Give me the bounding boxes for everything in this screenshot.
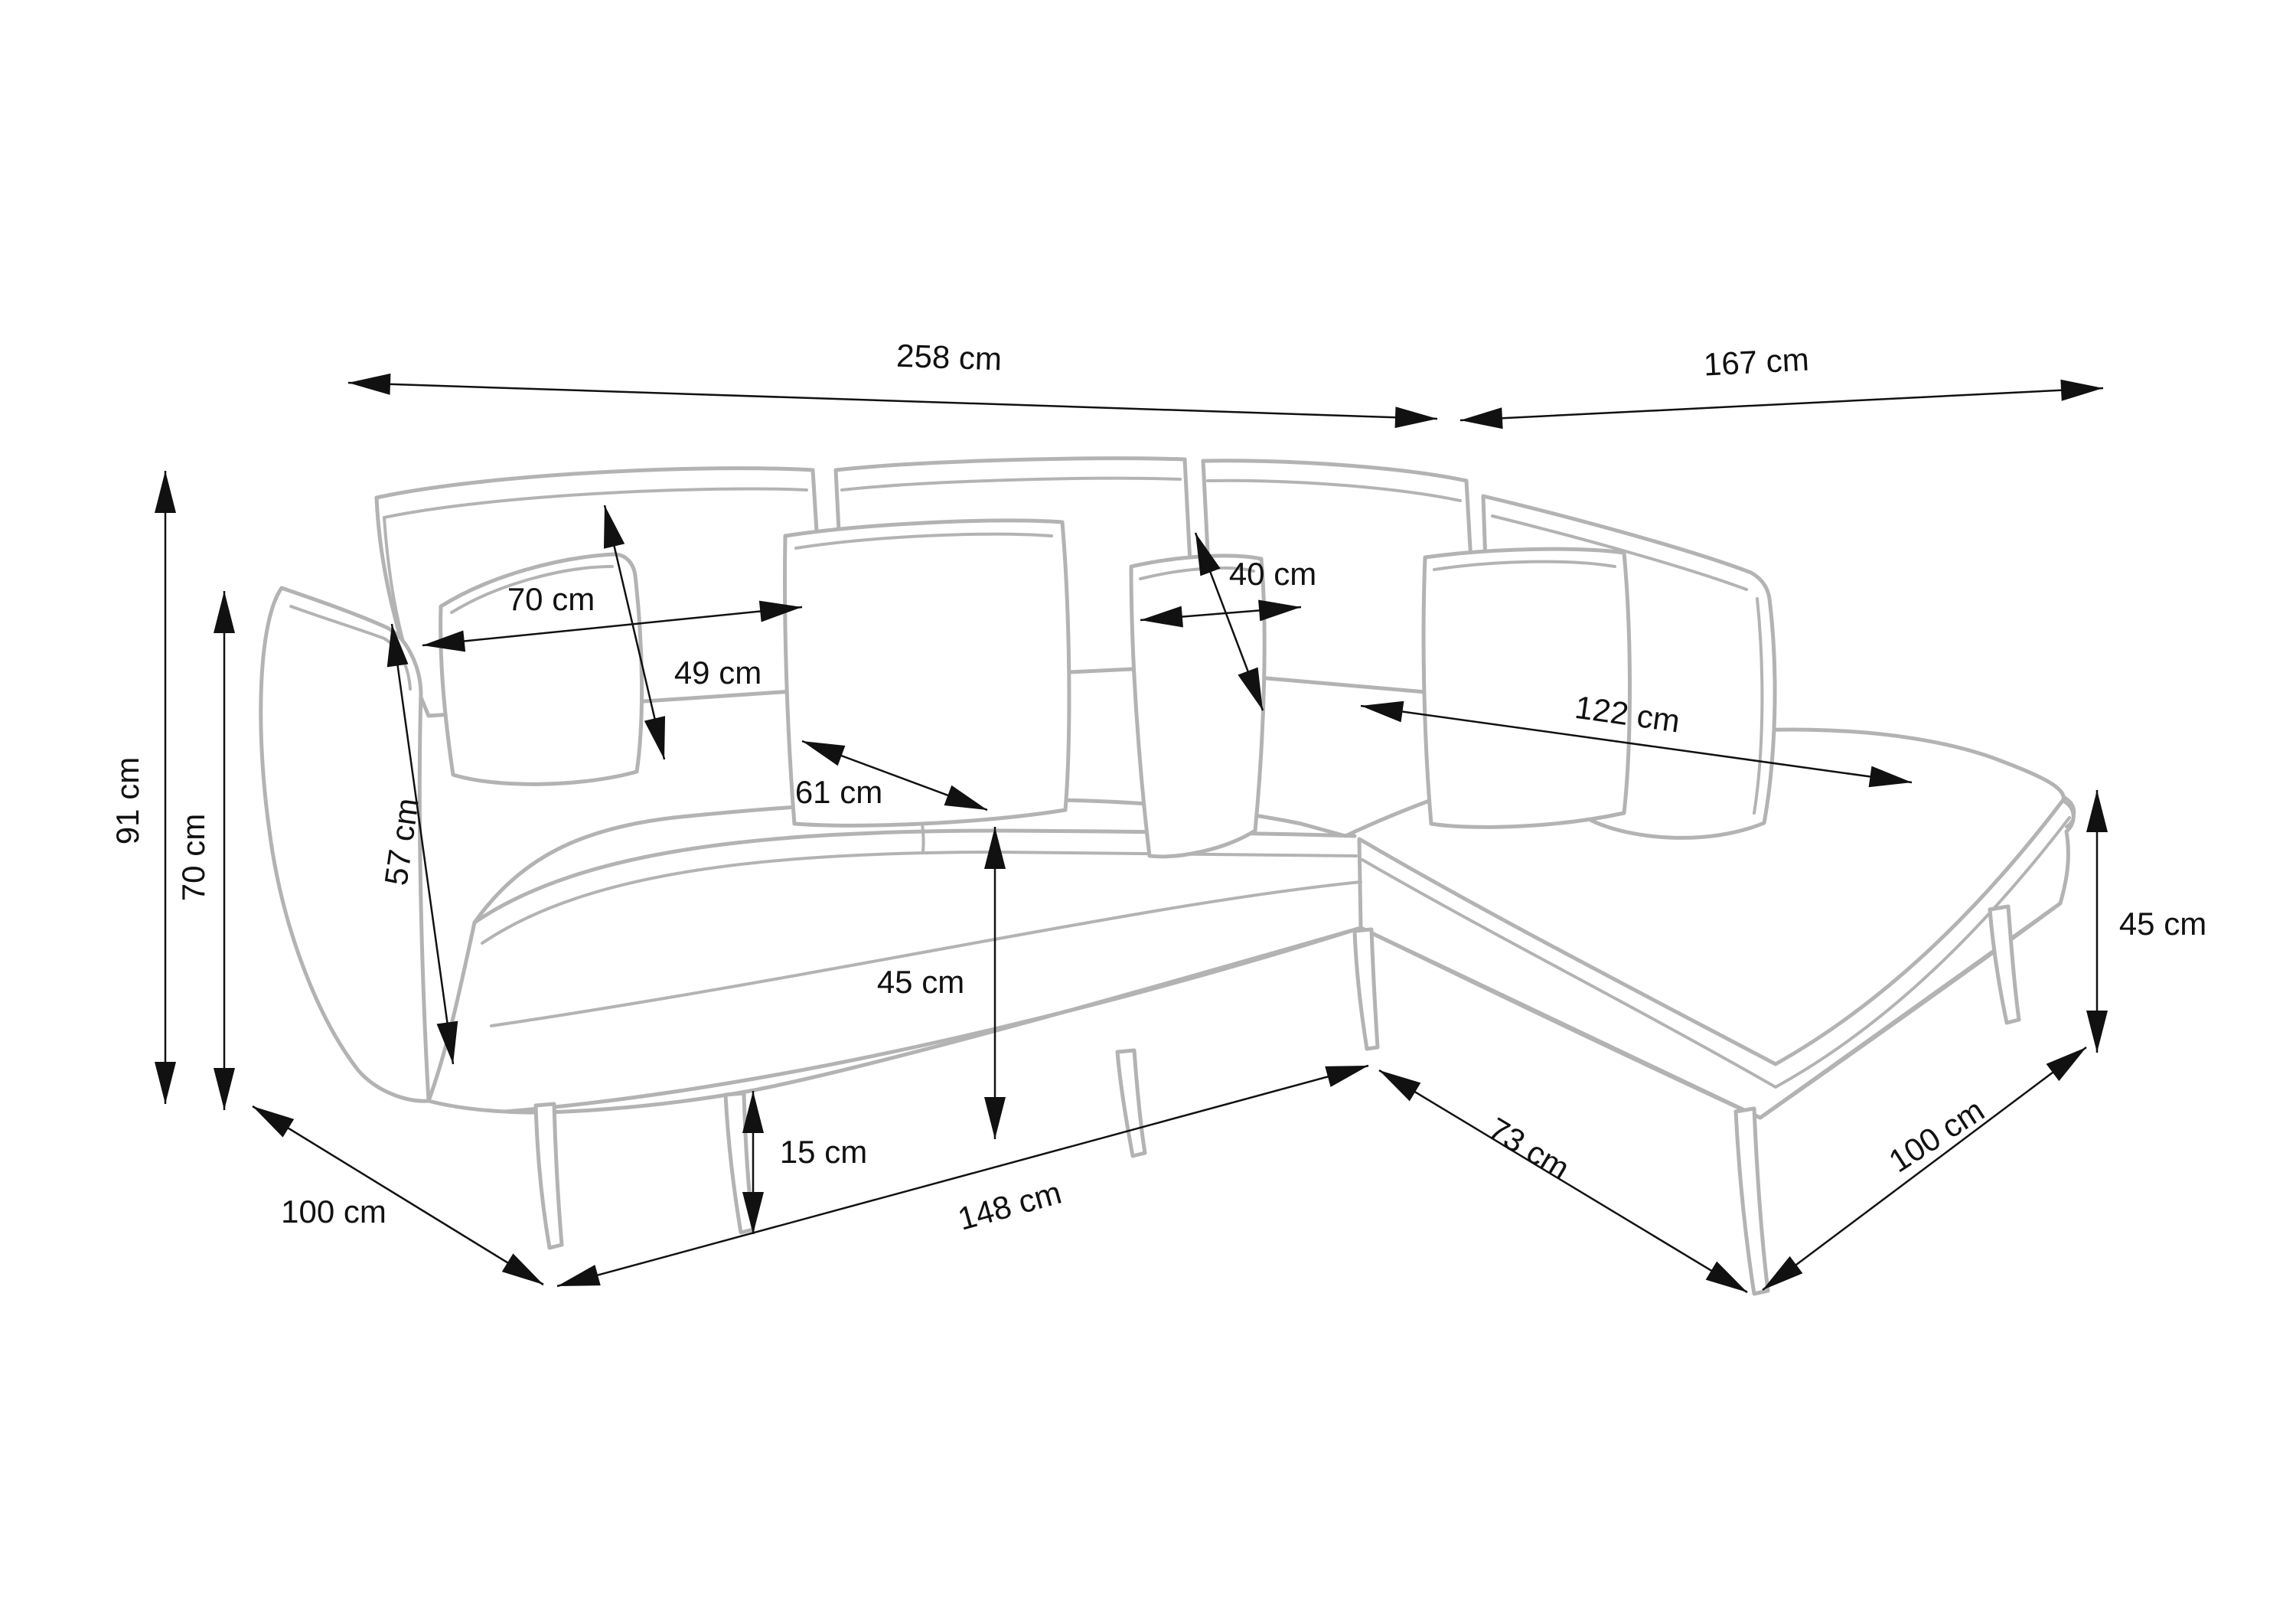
arrowhead-icon (1379, 1070, 1420, 1101)
leg-front-left (536, 1104, 562, 1248)
pillow-small-right (1131, 556, 1264, 857)
arrowhead-icon (2047, 1047, 2086, 1081)
dim-chaise-height: 45 cm (2086, 790, 2206, 1053)
arrowhead-icon (348, 374, 390, 395)
diagram-canvas: 258 cm167 cm91 cm70 cm70 cm49 cm40 cm57 … (0, 0, 2296, 1623)
dimension-line (1379, 1070, 1747, 1292)
dim-label-leg-height: 15 cm (780, 1134, 867, 1170)
dim-label-chaise-side-depth: 100 cm (1883, 1092, 1991, 1179)
pillow-middle-right (1424, 549, 1629, 827)
dim-chaise-front-edge: 73 cm (1379, 1070, 1747, 1292)
dim-overall-height: 91 cm (109, 471, 176, 1104)
dim-side-depth-left: 100 cm (253, 1106, 543, 1285)
leg-corner (1355, 929, 1378, 1049)
dim-overall-width-right: 167 cm (1460, 341, 2103, 429)
arrowhead-icon (155, 1062, 176, 1104)
arrowhead-icon (1361, 701, 1404, 723)
arrowhead-icon (155, 471, 176, 513)
arrowhead-icon (2086, 1011, 2108, 1053)
dim-label-back-cushion-width: 70 cm (507, 581, 595, 617)
arrowhead-icon (557, 1265, 601, 1286)
dim-label-side-depth-left: 100 cm (281, 1194, 386, 1229)
leg-under-rail (1117, 1050, 1145, 1156)
arrowhead-icon (253, 1106, 294, 1138)
arrowhead-icon (1460, 407, 1503, 429)
dim-label-overall-height: 91 cm (109, 757, 145, 844)
dim-label-front-edge-width: 148 cm (954, 1174, 1065, 1237)
dim-label-overall-width-right: 167 cm (1703, 341, 1810, 383)
arrowhead-icon (1706, 1262, 1747, 1292)
arrowhead-icon (1325, 1066, 1368, 1087)
dim-label-overall-width-left: 258 cm (895, 338, 1002, 377)
dim-label-backrest-height: 70 cm (175, 814, 211, 901)
dim-label-back-cushion-height: 49 cm (674, 655, 762, 691)
leg-chaise-front (1736, 1109, 1768, 1294)
arrowhead-icon (502, 1253, 543, 1285)
arrowhead-icon (214, 1068, 235, 1110)
dimension-line (1460, 388, 2103, 420)
dim-backrest-height: 70 cm (175, 591, 235, 1110)
dim-label-chaise-height: 45 cm (2119, 906, 2206, 942)
dim-overall-width-left: 258 cm (348, 338, 1437, 428)
arrowhead-icon (1763, 1256, 1802, 1290)
arrowhead-icon (644, 716, 665, 759)
arrowhead-icon (2086, 790, 2108, 832)
arrowhead-icon (1395, 407, 1437, 428)
arrowhead-icon (2060, 380, 2103, 401)
dim-label-seat-depth: 61 cm (795, 774, 882, 810)
dimension-line (348, 383, 1437, 419)
dim-label-small-pillow-width: 40 cm (1229, 556, 1316, 592)
dim-label-chaise-front-edge: 73 cm (1482, 1110, 1576, 1186)
arrowhead-icon (984, 1097, 1006, 1139)
sofa-dimension-diagram: 258 cm167 cm91 cm70 cm70 cm49 cm40 cm57 … (0, 0, 2296, 1623)
arrowhead-icon (214, 591, 235, 633)
dim-leg-height: 15 cm (742, 1091, 867, 1234)
dim-label-seat-height: 45 cm (877, 964, 964, 1000)
